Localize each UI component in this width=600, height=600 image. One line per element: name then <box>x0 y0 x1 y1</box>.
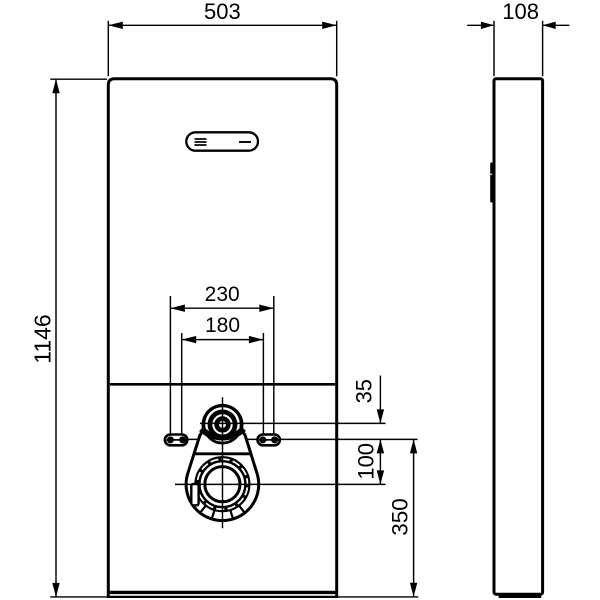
svg-text:503: 503 <box>204 0 241 24</box>
svg-text:180: 180 <box>205 314 240 337</box>
svg-text:350: 350 <box>388 498 413 536</box>
svg-text:35: 35 <box>352 379 377 403</box>
svg-text:230: 230 <box>205 283 240 306</box>
svg-text:108: 108 <box>502 0 539 24</box>
svg-text:100: 100 <box>354 443 379 480</box>
svg-text:1146: 1146 <box>30 314 56 363</box>
